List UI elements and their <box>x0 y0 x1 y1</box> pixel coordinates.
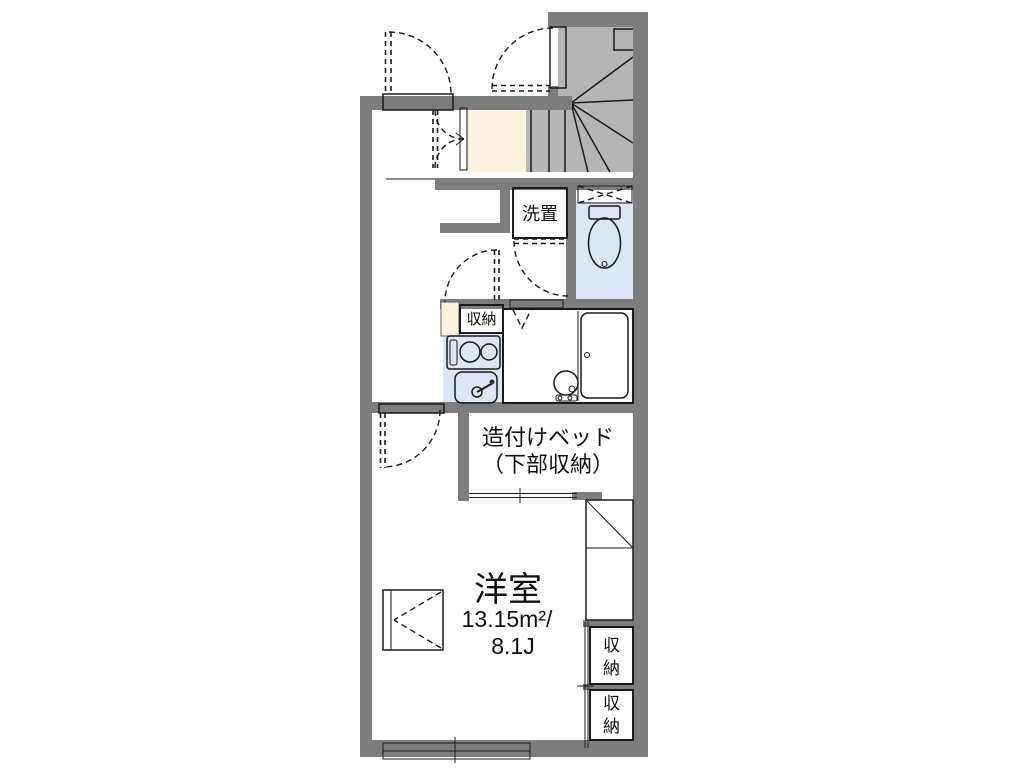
shoe-cabinet-swing <box>435 110 463 168</box>
faucet-tip-icon <box>490 380 495 385</box>
faucet-handle-left <box>558 396 562 400</box>
wall-duct-bottom <box>440 223 510 233</box>
washroom-door-open-leaf <box>514 239 566 244</box>
faucet-handle-right <box>568 396 572 400</box>
genkan-entrance <box>466 110 526 172</box>
shoe-cabinet-open-leaf <box>433 110 438 168</box>
entry-door-swing <box>389 32 451 94</box>
washer-label: 洗置 <box>522 204 558 224</box>
hall-door-open-leaf <box>495 250 500 302</box>
bathroom <box>503 300 633 403</box>
room-door-open-leaf <box>381 413 386 468</box>
stair-door-open-leaf <box>492 86 550 92</box>
bath-room <box>503 309 633 403</box>
room-tatami-label: 8.1J <box>491 633 534 659</box>
bath-knob-icon <box>585 353 590 358</box>
closet-upper-label: 収納 <box>603 636 620 678</box>
stair-door-swing <box>492 28 553 89</box>
hall-door-swing <box>445 250 497 302</box>
bath-folding-door-icon <box>513 310 531 328</box>
floor-plan-drawing: 洗置 収納 <box>0 0 1017 772</box>
window-left-opening-icon <box>394 592 441 648</box>
closets: 収納 収納 <box>577 622 633 748</box>
room-area-label: 13.15m²/ <box>462 606 553 632</box>
washing-machine-space: 洗置 <box>513 188 567 238</box>
bed-label-line2: （下部収納） <box>482 452 614 477</box>
washroom-door-swing <box>514 241 568 296</box>
main-room: 洋室 13.15m²/ 8.1J <box>462 571 553 659</box>
wall-right <box>633 12 648 757</box>
window-left-box <box>383 590 443 650</box>
bathtub <box>581 313 628 398</box>
bed-label-line1: 造付けベッド <box>482 425 614 450</box>
bed-front-edge <box>469 488 577 503</box>
wall-duct-side <box>500 188 510 233</box>
refrigerator-space <box>586 500 633 620</box>
kitchen-cabinet-side <box>441 302 459 336</box>
wall-left <box>360 96 372 757</box>
wall-bed-left <box>458 413 469 501</box>
entry-door-open-leaf <box>386 32 392 94</box>
fridge-diagonal <box>586 500 633 548</box>
floor-plan: 洗置 収納 <box>0 0 1017 772</box>
closet-lower-label: 収納 <box>603 694 620 736</box>
fridge-nook <box>586 500 633 620</box>
room-name-label: 洋室 <box>474 571 542 609</box>
shower-head-icon <box>569 386 575 392</box>
room-door-swing <box>383 410 440 467</box>
wall-closet-sliver-top <box>583 620 633 627</box>
toilet-room <box>576 202 633 299</box>
kitchen-storage-label: 収納 <box>466 311 496 328</box>
built-in-bed: 造付けベッド （下部収納） <box>469 425 614 503</box>
